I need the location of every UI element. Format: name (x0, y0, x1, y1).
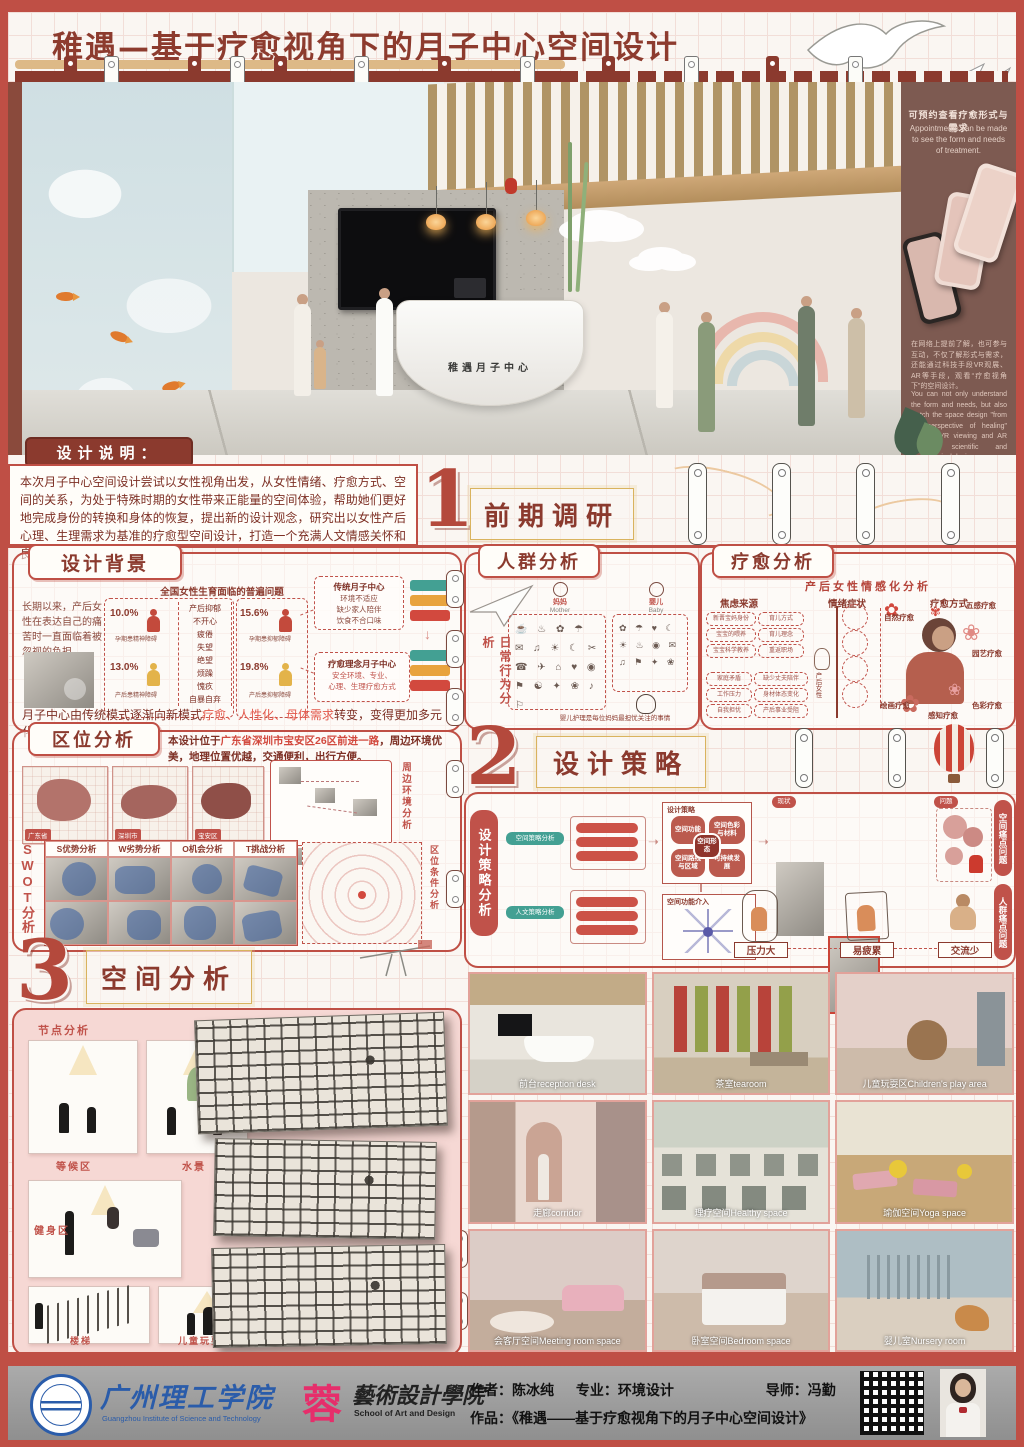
swot-photo (234, 901, 297, 945)
college-logo: 蓉 (302, 1372, 342, 1430)
radial-location-map (302, 842, 422, 944)
healing-item: 心理、生理疗愈方式 (315, 681, 409, 692)
symptom: 烦躁 (179, 667, 231, 680)
symptom: 疲倦 (179, 628, 231, 641)
traditional-title: 传统月子中心 (315, 581, 403, 593)
mother-group-header: 妈妈 Mother (540, 582, 580, 614)
feature-chip-red (410, 680, 450, 691)
traditional-item: 饮食不合口味 (315, 615, 403, 626)
photo-face (955, 1379, 971, 1397)
surroundings-collage (270, 760, 392, 846)
binder-ring (446, 630, 464, 668)
lamp-cord (436, 186, 437, 214)
collage-connector (301, 781, 359, 783)
figure-body (950, 906, 976, 930)
yoga-ball (957, 1164, 972, 1179)
location-desc-red: 广东省深圳市宝安区26区前进一路 (221, 735, 380, 747)
pain-hug-illustration (948, 894, 978, 936)
stat-pct: 13.0% (110, 662, 138, 673)
baby-daily-icons-grid: ✿ ☂ ♥ ☾ ☀ ♨ ◉ ✉ ♫ ⚑ ✦ ❀ (612, 614, 688, 692)
symptom-circle (842, 656, 868, 682)
conclusion-pre: 月子中心由传统模式逐渐向新模式 (22, 708, 202, 722)
swot-photo (45, 857, 108, 901)
render-caption: 茶室tearoom (654, 1077, 829, 1090)
stat-label: 孕期患精神障碍 (108, 634, 164, 643)
desk-shape (524, 1036, 594, 1062)
anxiety-chip: 身材体态变化 (754, 688, 808, 702)
author-line: 作者：陈冰纯 专业：环境设计 导师：冯勤 (470, 1380, 836, 1400)
red-lantern (505, 178, 517, 194)
anxiety-chip: 宝宝科学教养 (706, 644, 756, 658)
pendant-lamp (426, 214, 446, 230)
symptom: 失望 (179, 641, 231, 654)
map-shenzhen: 深圳市 (112, 766, 188, 844)
radial-title: 空间功能介入 (667, 897, 709, 907)
staff-silhouette (376, 288, 393, 396)
symptom: 不开心 (179, 615, 231, 628)
major: 专业：环境设计 (576, 1382, 674, 1398)
render-meeting-room: 会客厅空间Meeting room space (468, 1229, 647, 1352)
map-guangdong: 广东省 (22, 766, 108, 844)
binder-ring (446, 760, 464, 798)
mother-baby-outline (636, 694, 656, 714)
radial-hub (703, 927, 713, 937)
render-caption: 会客厅空间Meeting room space (470, 1334, 645, 1347)
surroundings-label: 周边环境分析 (398, 762, 412, 846)
college-name-zh: 藝術設計學院 (352, 1378, 484, 1410)
traditional-item: 环境不适应 (315, 593, 403, 604)
section-2-title: 设计策略 (536, 736, 706, 788)
washi-tape (15, 60, 565, 69)
problem-bubble (963, 827, 983, 847)
arrow-icon: ➝ (648, 834, 659, 850)
seesaw-sketch (356, 938, 436, 980)
site-center-dot (358, 891, 366, 899)
baby-group-header: 婴儿 Baby (636, 582, 676, 614)
baby-figure (856, 905, 875, 932)
strategy-pill (576, 897, 638, 907)
render-tearoom: 茶室tearoom (652, 972, 831, 1095)
feature-chip-teal (410, 650, 450, 661)
stat-label: 孕期患抑郁障碍 (240, 634, 300, 643)
stat-pct: 19.8% (240, 662, 268, 673)
render-corridor: 走廊corridor (468, 1100, 647, 1223)
healing-tab: 疗愈分析 (712, 544, 834, 578)
koi-fish (56, 292, 74, 301)
college-name-en: School of Art and Design (354, 1408, 455, 1418)
healing-subtitle: 产后女性情感化分析 (778, 578, 958, 594)
stat-figure-yellow (278, 656, 292, 686)
child-silhouette (314, 340, 326, 389)
pendant-lamp (526, 210, 546, 226)
author: 作者：陈冰纯 (470, 1382, 554, 1398)
current-state-photo (776, 862, 824, 936)
flower-icon: ❀ (948, 680, 961, 700)
render-caption: 卧室空间Bedroom space (654, 1334, 829, 1347)
vignette-label: 等候区 (56, 1158, 92, 1173)
section-1-title: 前期调研 (470, 488, 634, 540)
hanging-tag (795, 728, 813, 788)
strategy-side-label: 设计策略分析 (470, 810, 498, 936)
window-shape (977, 992, 1005, 1066)
symptom-circle (842, 682, 868, 708)
advisor: 导师：冯勤 (766, 1382, 836, 1398)
swot-photo (234, 857, 297, 901)
flow-title: 设计策略 (667, 805, 695, 815)
feature-chip-orange (410, 595, 450, 606)
app-sidebar: 可预约查看疗愈形式与需求 Appointments can be made to… (901, 82, 1016, 455)
method-label: 园艺疗愈 (972, 648, 1002, 659)
app-body-zh: 在网络上提前了解，也可参与互动，不仅了解形式与需求，还能通过科技手段VR观展、A… (911, 340, 1007, 393)
problem-figure (969, 855, 983, 873)
center-label: 产后女性 (812, 672, 822, 712)
feature-chip-orange (410, 665, 450, 676)
floor-plan-2 (213, 1138, 437, 1240)
mother-baby-photo (24, 652, 94, 708)
method-label: 自然疗愈 (884, 612, 914, 623)
anxiety-chip: 育儿理念 (758, 628, 804, 642)
anxiety-chip: 缺少丈夫陪伴 (754, 672, 808, 686)
section-3-title: 空间分析 (86, 950, 252, 1004)
footer-band: 广州理工学院 Guangzhou Institute of Science an… (8, 1366, 1016, 1440)
arrow-icon: ➝ (758, 834, 769, 850)
render-left-strip (8, 82, 22, 455)
university-logo-inner (40, 1384, 82, 1426)
hanging-tag (772, 463, 791, 545)
current-state-tag: 现状 (772, 796, 796, 808)
healing-item: 安全环境、专业、 (315, 670, 409, 681)
strategy-pill (576, 823, 638, 833)
hanging-tag (888, 728, 906, 788)
anxiety-chip: 育儿方式 (758, 612, 804, 626)
location-tab: 区位分析 (28, 722, 160, 756)
floor-plan-1 (194, 1012, 448, 1135)
pendant-lamp (476, 214, 496, 230)
render-therapy: 理疗空间Healthy space (652, 1100, 831, 1223)
radial-map-label: 区位条件分析 (428, 845, 441, 941)
mother-icon (553, 582, 568, 597)
section-2-numeral: 2 (466, 714, 522, 798)
hanging-tag (856, 463, 875, 545)
baby-figure (751, 907, 767, 931)
lamp-cord (486, 182, 487, 214)
render-nursery: 婴儿室Nursery room (835, 1229, 1014, 1352)
problem-cluster (936, 808, 992, 882)
site-photo (279, 767, 301, 784)
method-label: 绘画疗愈 (880, 700, 910, 711)
pain-label: 交流少 (938, 942, 992, 958)
vignette-label: 楼梯 (70, 1334, 92, 1347)
anxiety-chip: 新晋宝妈身份 (706, 612, 756, 626)
problem-bubble (945, 847, 963, 865)
school-name-zh: 广州理工学院 (100, 1376, 274, 1415)
strategy-pill (576, 911, 638, 921)
colored-shelves (674, 986, 794, 1052)
anxiety-chip: 家庭矛盾 (706, 672, 752, 686)
render-caption: 瑜伽空间Yoga space (837, 1206, 1012, 1219)
symptom-list: 产后抑郁 不开心 疲倦 失望 绝望 烦躁 愧疚 自暴自弃 (178, 602, 232, 706)
map-baoan: 宝安区 (192, 766, 264, 844)
render-caption: 走廊corridor (470, 1206, 645, 1219)
person-silhouette (698, 312, 715, 432)
healing-center-box: 疗愈理念月子中心 安全环境、专业、 心理、生理疗愈方式 (314, 652, 410, 702)
swot-header: W劣势分析 (108, 841, 171, 857)
woman-face (932, 626, 954, 650)
koi-fish (109, 329, 129, 344)
flower-icon: ✾ (930, 604, 941, 620)
qr-code (860, 1371, 924, 1435)
strategy-group1-pill: 空间策略分析 (506, 832, 564, 845)
strategy-group2-pill: 人文策略分析 (506, 906, 564, 919)
anxiety-chip: 自我担忧 (706, 704, 752, 718)
pain-box-illustration (845, 891, 889, 941)
swot-header: O机会分析 (171, 841, 234, 857)
stat-pct: 15.6% (240, 608, 268, 619)
yoga-ball (889, 1160, 907, 1178)
postpartum-woman-sketch (814, 648, 830, 670)
balloon-basket (948, 774, 960, 783)
bed-shape (702, 1287, 786, 1325)
render-caption: 前台reception desk (470, 1077, 645, 1090)
symptom: 产后抑郁 (179, 602, 231, 615)
strategy-pill (576, 851, 638, 861)
strategy-group2-box (570, 890, 646, 944)
work-title: 作品：《稚遇——基于疗愈视角下的月子中心空间设计》 (470, 1408, 813, 1428)
symptom-circle (842, 604, 868, 630)
stat-figure-red (278, 602, 292, 632)
author-photo (940, 1369, 986, 1437)
mother-daily-icons-grid: ☕ ♨ ✿ ☂ ✉ ♫ ☀ ☾ ✂ ☎ ✈ ⌂ ♥ ◉ ⚑ ☯ ✦ ❀ ♪ ⚐ (508, 614, 606, 710)
baby-label-en: Baby (636, 607, 676, 614)
binder-ring (446, 570, 464, 608)
mother-label-zh: 妈妈 (540, 597, 580, 607)
strategy-flower-diagram: 设计策略 空间功能 空间色彩与材料 空间路线与区域 可持续发展 空间形态 (662, 802, 752, 884)
symptom-tag-line (870, 608, 881, 708)
anxiety-chip: 宝宝的喂养 (706, 628, 756, 642)
swot-photo (171, 901, 234, 945)
person-silhouette (798, 296, 815, 426)
app-headline-en: Appointments can be made to see the form… (909, 124, 1008, 156)
exercise-bike-sketch (133, 1229, 159, 1247)
symptom: 自暴自弃 (179, 693, 231, 706)
anxiety-chip: 产后事业受阻 (754, 704, 808, 718)
section-1-numeral: 1 (420, 458, 474, 542)
background-chart-title: 全国女性生育面临的普遍问题 (106, 584, 338, 598)
bamboo-stalk (568, 142, 572, 292)
background-intro: 长期以来，产后女性在表达自己的痛苦时一直面临着被忽视的负担。 (22, 600, 102, 660)
healing-col-source: 焦虑来源 (720, 596, 758, 610)
school-name-en: Guangzhou Institute of Science and Techn… (102, 1414, 261, 1423)
stat-label: 产后患精神障碍 (108, 690, 164, 699)
photo-bow (959, 1407, 967, 1413)
baby-icon (649, 582, 664, 597)
render-children-play: 儿童玩耍区Children's play area (835, 972, 1014, 1095)
stat-label: 产后患抑郁障碍 (240, 690, 300, 699)
tv-shape (498, 1014, 532, 1036)
crowd-tab: 人群分析 (478, 544, 600, 578)
strategy-pill (576, 837, 638, 847)
flow-connector (700, 884, 703, 892)
yoga-mat (913, 1179, 958, 1198)
strategy-pill (576, 925, 638, 935)
person-silhouette (294, 294, 311, 396)
site-photo (315, 788, 335, 803)
hanging-tag (688, 463, 707, 545)
pain-label: 压力大 (734, 942, 788, 958)
vignette-waiting-area (28, 1040, 138, 1154)
render-gallery: 前台reception desk 茶室tearoom 儿童玩耍区Children… (468, 972, 1014, 1352)
seagull-illustration (800, 12, 950, 76)
down-arrow-icon: ↓ (424, 626, 431, 642)
person-silhouette (656, 302, 673, 408)
hot-air-balloon-icon (934, 724, 974, 772)
desk-sign: 稚遇月子中心 (397, 359, 583, 374)
pain-label: 易疲累 (840, 942, 894, 958)
pink-sofa (562, 1285, 624, 1311)
vignette-label: 水景 (182, 1158, 206, 1173)
swot-header: T挑战分析 (234, 841, 297, 857)
anxiety-chip: 重返职场 (758, 644, 804, 658)
vignette-label: 健身区 (34, 1222, 70, 1237)
collage-connector (307, 806, 357, 815)
rug-shape (490, 1311, 554, 1333)
main-render-image: 稚遇月子中心 可预约查看疗愈形式与需求 Appointments can be … (8, 82, 1016, 455)
render-caption: 婴儿室Nursery room (837, 1334, 1012, 1347)
pain-bottle-illustration (742, 890, 778, 942)
headboard-shape (702, 1273, 786, 1289)
swot-photo (108, 901, 171, 945)
hanging-tag (986, 728, 1004, 788)
rocking-horse (955, 1305, 989, 1331)
teddy-bear-shape (907, 1020, 947, 1060)
top-frame-notches (560, 71, 1008, 82)
symptom-bracket-line (836, 606, 838, 718)
render-bedroom: 卧室空间Bedroom space (652, 1229, 831, 1352)
symptom: 愧疚 (179, 680, 231, 693)
stat-pct: 10.0% (110, 608, 138, 619)
flower-icon: ❀ (962, 620, 980, 646)
node-analysis-label: 节点分析 (38, 1022, 90, 1038)
method-label: 感知疗愈 (928, 710, 958, 721)
traditional-center-box: 传统月子中心 环境不适应 缺少家人陪伴 饮食不合口味 (314, 576, 404, 630)
petal-center: 空间形态 (693, 833, 721, 859)
symptom-circle (842, 630, 868, 656)
render-caption: 儿童玩耍区Children's play area (837, 1077, 1012, 1090)
poster: 稚遇—基于疗愈视角下的月子中心空间设计 (0, 0, 1024, 1447)
problem-tag: 问题 (934, 796, 958, 808)
method-label: 五感疗愈 (966, 600, 996, 611)
strategy-group1-box (570, 816, 646, 870)
render-caption: 理疗空间Healthy space (654, 1206, 829, 1219)
footer-top-strip (8, 1352, 1016, 1366)
floor-tile-lines (488, 390, 788, 455)
feature-chip-red (410, 610, 450, 621)
swot-header: S优势分析 (45, 841, 108, 857)
stat-figure-yellow (146, 656, 160, 686)
anxiety-chip: 工作压力 (706, 688, 752, 702)
baby-label-zh: 婴儿 (636, 597, 676, 607)
render-yoga: 瑜伽空间Yoga space (835, 1100, 1014, 1223)
pain-connector (894, 948, 942, 950)
crowd-caption: 婴儿护理是每位妈妈最担忧关注的事情 (540, 712, 690, 722)
strategy-right-tab2: 人群痛点问题 (994, 884, 1012, 960)
symptom: 绝望 (179, 654, 231, 667)
hanging-tag (941, 463, 960, 545)
design-description-text: 本次月子中心空间设计尝试以女性视角出发，从女性情绪、疗愈方式、空间的关系，为处于… (8, 464, 418, 546)
lamp-cord (536, 180, 537, 210)
mother-label-en: Mother (540, 607, 580, 614)
strategy-right-tab1: 空间痛点问题 (994, 800, 1012, 876)
section-3-numeral: 3 (16, 928, 73, 1014)
cloud-decor (638, 247, 684, 269)
swot-photo (108, 857, 171, 901)
binder-ring (446, 870, 464, 908)
binder-ring (446, 688, 464, 726)
healing-title: 疗愈理念月子中心 (315, 658, 409, 670)
conclusion-highlight: 疗愈、人性化、母体需求 (202, 708, 334, 722)
pain-connector (788, 948, 842, 950)
swot-photo (171, 857, 234, 901)
floor-plan-3 (211, 1244, 447, 1348)
feature-chip-teal (410, 580, 450, 591)
stat-figure-red (146, 602, 160, 632)
swot-table: S优势分析 W劣势分析 O机会分析 T挑战分析 (44, 840, 298, 946)
university-logo (30, 1374, 92, 1436)
traditional-item: 缺少家人陪伴 (315, 604, 403, 615)
person-silhouette (848, 308, 865, 418)
method-label: 色彩疗愈 (972, 700, 1002, 711)
desk-computer (454, 278, 486, 298)
cloud-decor (568, 210, 632, 240)
crib-rails (867, 1255, 957, 1299)
render-reception: 前台reception desk (468, 972, 647, 1095)
table-shape (750, 1052, 808, 1066)
location-desc-pre: 本设计位于 (168, 735, 221, 747)
design-background-tab: 设计背景 (28, 544, 182, 580)
recliner-row (662, 1154, 822, 1176)
